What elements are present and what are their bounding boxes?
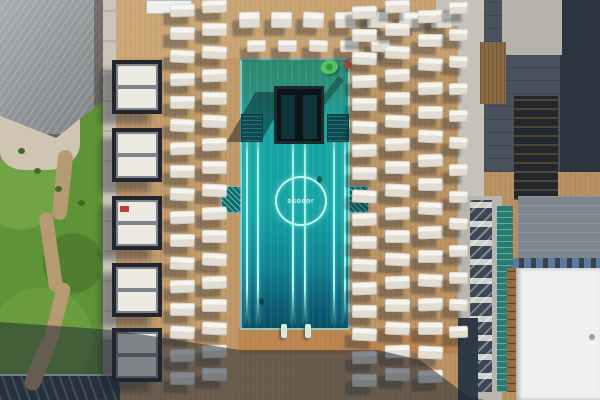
lounge-chair <box>271 12 292 28</box>
lounge-chair <box>202 69 227 83</box>
lounge-chair <box>418 250 443 263</box>
red-pillow <box>120 206 129 212</box>
platform-slot <box>303 95 317 139</box>
rooftop-pergola <box>514 96 558 200</box>
lounge-chair <box>202 368 227 381</box>
lounge-chair <box>170 303 195 316</box>
lounge-chair <box>170 256 196 270</box>
lounge-chair <box>385 69 410 83</box>
cabana <box>112 60 162 114</box>
lounge-chair <box>352 374 377 387</box>
lounge-chair <box>352 98 377 111</box>
lounge-chair <box>418 226 443 240</box>
rooftop-concrete-pad <box>502 0 562 55</box>
lounge-chair <box>449 272 468 284</box>
lounge-chair <box>352 213 377 227</box>
aerial-photo-pool-scene: osocor <box>0 0 600 400</box>
lounge-chair <box>449 110 468 122</box>
lounge-chair <box>202 207 227 221</box>
cabana-mattress <box>118 357 156 376</box>
bush <box>34 168 41 174</box>
lounge-chair <box>170 118 196 132</box>
bush <box>18 148 25 154</box>
lounge-chair <box>385 321 411 335</box>
lounge-chair <box>202 321 228 335</box>
lounge-chair <box>352 236 377 249</box>
in-pool-bench-right <box>327 114 349 142</box>
lounge-chair <box>449 218 469 231</box>
lounge-chair <box>170 187 196 201</box>
white-rooftop <box>516 268 600 400</box>
navy-roof-section <box>560 0 600 172</box>
lounge-chair <box>278 40 297 52</box>
lounge-chair <box>352 6 377 20</box>
cabana-mattress <box>118 157 156 176</box>
swimmer <box>317 176 322 183</box>
cabana <box>112 263 162 317</box>
lounge-chair <box>449 2 468 15</box>
lounge-chair <box>418 178 443 191</box>
lounge-chair <box>170 165 195 178</box>
in-pool-bench-left <box>241 114 263 142</box>
cabana-mattress <box>118 269 156 288</box>
lounge-chair <box>170 27 195 40</box>
pool-lane-line <box>257 130 259 324</box>
lounge-chair <box>418 201 444 215</box>
lounge-chair <box>385 299 410 312</box>
lounge-chair <box>202 114 228 128</box>
lounge-chair <box>352 51 378 65</box>
lounge-chair <box>202 345 227 359</box>
lounge-chair <box>170 349 195 363</box>
lounge-chair <box>170 280 195 294</box>
lounge-chair <box>170 49 196 63</box>
lounge-chair <box>418 34 443 47</box>
lounge-chair <box>202 299 227 312</box>
platform-slot <box>281 95 295 139</box>
lounge-chair <box>418 10 443 24</box>
lounge-chair <box>449 191 468 203</box>
lounge-chair <box>309 40 329 53</box>
pool-lane-line <box>304 130 306 324</box>
lounge-chair <box>449 245 468 258</box>
lounge-chair <box>385 23 410 36</box>
lounge-chair <box>170 73 195 87</box>
lounge-chair <box>418 82 443 96</box>
cabana-mattress <box>118 134 156 153</box>
lounge-chair <box>385 183 411 197</box>
pool-lane-line <box>246 130 248 324</box>
lounge-chair <box>449 326 468 339</box>
roof-vent <box>589 334 595 340</box>
lounge-chair <box>352 351 377 365</box>
lounge-chair <box>418 273 444 287</box>
lounge-chair <box>449 29 468 41</box>
lounge-chair <box>385 207 410 221</box>
lounge-chair <box>418 298 443 312</box>
lounge-chair <box>352 305 377 318</box>
lounge-chair <box>385 276 410 290</box>
lounge-chair <box>449 299 469 312</box>
lounge-chair <box>202 92 227 105</box>
cabana-mattress <box>118 89 156 108</box>
lounge-chair <box>303 11 325 28</box>
lounge-chair <box>202 183 228 197</box>
lounge-chair <box>418 370 443 384</box>
lounge-chair <box>385 45 411 59</box>
rooftop-wood-patch <box>480 42 506 104</box>
cabana-mattress <box>118 292 156 311</box>
lounge-chair <box>202 138 227 152</box>
wood-ladder-strip <box>507 268 516 392</box>
pool-ladder <box>305 324 311 338</box>
lounge-chair <box>385 345 410 359</box>
pool-lane-line <box>333 130 335 324</box>
cabana <box>112 328 162 382</box>
cabana-mattress <box>118 334 156 353</box>
lounge-chair <box>385 138 410 152</box>
lounge-chair <box>247 40 266 53</box>
lounge-chair <box>385 161 410 174</box>
lounge-chair <box>449 83 468 96</box>
lounge-chair <box>385 368 410 381</box>
lounge-chair <box>352 189 378 203</box>
lounge-chair <box>202 230 227 243</box>
lounge-chair <box>418 106 443 119</box>
cabana-mattress <box>118 225 156 244</box>
lounge-chair <box>449 137 469 150</box>
lounge-chair <box>385 92 410 105</box>
lounge-chair <box>385 252 411 266</box>
lounge-chair <box>385 114 411 128</box>
lounge-chair <box>170 325 196 339</box>
lounge-chair <box>352 75 377 89</box>
lounge-chair <box>418 57 444 71</box>
lounge-chair <box>352 282 377 296</box>
lounge-chair <box>352 167 377 180</box>
bush <box>55 186 62 192</box>
lounge-chair <box>202 23 227 36</box>
lounge-chair <box>202 45 228 59</box>
lounge-chair <box>352 144 377 158</box>
lounge-chair <box>202 161 227 174</box>
lounge-chair <box>170 142 195 156</box>
lounge-chair <box>385 0 410 13</box>
pool-ladder <box>281 324 287 338</box>
lounge-chair <box>170 372 195 385</box>
gray-metal-roof <box>518 196 600 260</box>
lounge-chair <box>449 56 469 69</box>
lounge-chair <box>418 129 444 143</box>
lounge-chair <box>170 4 195 18</box>
lounge-chair <box>352 258 378 272</box>
lounge-chair <box>418 345 444 359</box>
pool-lane-line <box>292 130 294 324</box>
pool-lane-line <box>344 130 346 324</box>
lounge-chair <box>239 12 261 29</box>
lounge-chair <box>202 252 228 266</box>
pool-logo-text: osocor <box>288 198 315 205</box>
lounge-chair <box>418 322 443 335</box>
lounge-chair <box>202 276 227 290</box>
swimmer <box>259 298 264 305</box>
cabana <box>112 128 162 182</box>
lounge-chair <box>385 230 410 243</box>
bush <box>78 200 85 206</box>
lounge-chair <box>170 211 195 225</box>
lounge-chair <box>352 120 378 134</box>
cabana-mattress <box>118 66 156 85</box>
pool-logo-ring: osocor <box>275 176 327 226</box>
lounge-chair <box>352 327 378 341</box>
lounge-chair <box>170 234 195 247</box>
cabana <box>112 196 162 250</box>
pool-platform <box>274 86 324 144</box>
glass-canopy-structure <box>0 374 120 400</box>
lounge-chair <box>418 154 443 168</box>
lounge-chair <box>449 164 468 177</box>
lounge-chair <box>202 0 227 13</box>
lounge-chair <box>352 29 377 42</box>
lounge-chair <box>170 96 195 109</box>
